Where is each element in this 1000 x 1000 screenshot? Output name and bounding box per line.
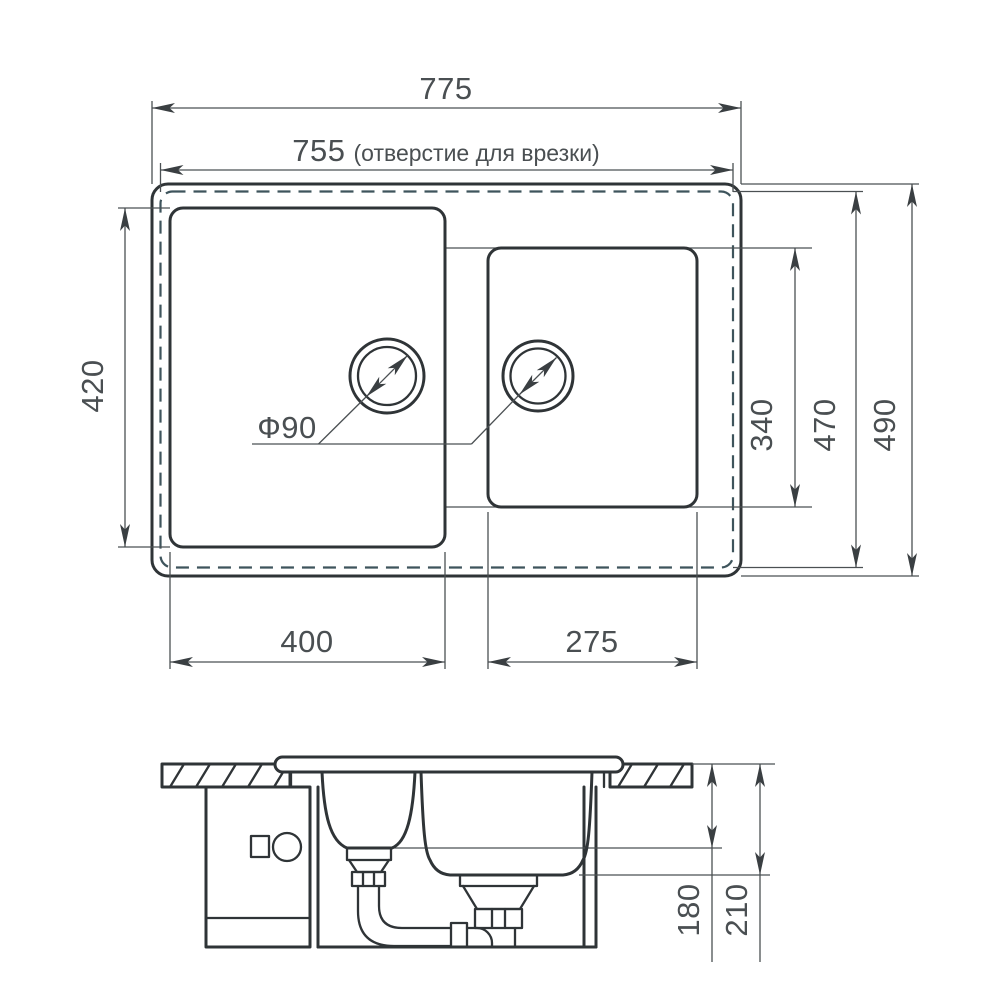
small-bowl-drain-assembly: [347, 848, 467, 947]
base-cabinet: [206, 787, 310, 947]
dim-right-bowl-height: 340: [744, 248, 795, 507]
cabinet-knob-detail: [273, 833, 301, 861]
dim-overall-width: 775: [152, 71, 741, 184]
dim-cutout-height-label: 470: [807, 398, 842, 451]
dim-right-bowl-width: 275: [488, 512, 697, 669]
dim-right-bowl-width-label: 275: [565, 624, 618, 659]
top-view: Ф90 775 755(отверстие для врезки) 420 34…: [75, 71, 919, 669]
dim-left-bowl-width: 400: [170, 552, 445, 669]
small-bowl-section: [322, 772, 415, 848]
drain-pipe-outer: [358, 886, 451, 946]
cabinet-outline: [206, 787, 310, 947]
drain-nut: [352, 872, 385, 886]
dim-cutout-width-label: 755(отверстие для врезки): [292, 133, 599, 168]
left-bowl-outline: [170, 208, 445, 547]
dim-cutout-width-note: (отверстие для врезки): [354, 140, 600, 166]
dim-large-bowl-depth: 210: [719, 764, 760, 962]
dim-overall-height-label: 490: [867, 398, 902, 451]
technical-drawing-page: Ф90 775 755(отверстие для врезки) 420 34…: [0, 0, 1000, 1000]
drain-funnel: [349, 860, 389, 872]
dim-cutout-width-number: 755: [292, 133, 345, 168]
large-bowl-drain-assembly: [460, 875, 537, 947]
dim-left-bowl-height: 420: [75, 208, 170, 547]
dim-left-bowl-height-label: 420: [75, 359, 110, 412]
right-bowl-outline: [488, 248, 697, 507]
dim-small-bowl-depth-label: 180: [671, 883, 706, 936]
section-view: 180 210: [162, 757, 775, 962]
drain-flange: [347, 848, 391, 860]
pipe-coupler: [451, 923, 467, 947]
dim-left-bowl-width-label: 400: [280, 624, 333, 659]
countertop-left-hatching: [170, 764, 288, 787]
countertop-right-hatching: [618, 764, 684, 787]
dim-right-bowl-height-label: 340: [744, 398, 779, 451]
dim-large-bowl-depth-label: 210: [719, 883, 754, 936]
sink-technical-drawing: Ф90 775 755(отверстие для врезки) 420 34…: [0, 0, 1000, 1000]
pipe-elbow: [467, 928, 492, 947]
drain-diameter-label: Ф90: [257, 410, 317, 445]
countertop-left: [162, 764, 290, 787]
dim-overall-width-label: 775: [419, 71, 472, 106]
sink-rim-section: [275, 757, 623, 772]
drain-flange: [460, 875, 537, 886]
drain-nut: [475, 909, 522, 928]
drain-pipe-inner: [379, 886, 451, 928]
large-bowl-section: [421, 772, 592, 875]
cabinet-switch-detail: [251, 836, 269, 857]
dim-overall-height: 490: [741, 184, 919, 576]
drain-funnel: [463, 886, 534, 909]
dim-small-bowl-depth: 180: [671, 764, 712, 962]
